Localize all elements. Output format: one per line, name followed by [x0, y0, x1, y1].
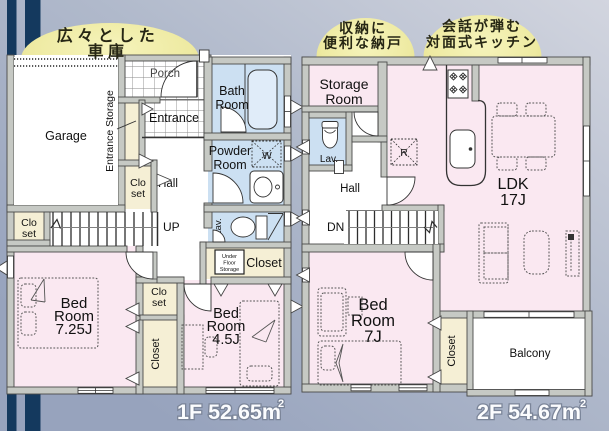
svg-text:Balcony: Balcony	[510, 348, 551, 360]
svg-text:set: set	[152, 297, 166, 309]
svg-text:Garage: Garage	[45, 129, 87, 143]
svg-text:Room: Room	[213, 158, 246, 172]
svg-text:Storage: Storage	[319, 76, 368, 92]
svg-text:車庫: 車庫	[87, 42, 128, 61]
svg-text:Under: Under	[222, 254, 237, 260]
svg-text:対面式キッチン: 対面式キッチン	[425, 34, 538, 50]
svg-text:Closet: Closet	[446, 335, 458, 366]
svg-text:17J: 17J	[500, 192, 526, 209]
svg-text:R: R	[400, 148, 407, 159]
svg-text:Floor: Floor	[223, 261, 236, 267]
svg-text:set: set	[131, 188, 145, 200]
svg-text:1F 52.65m: 1F 52.65m	[177, 400, 281, 424]
svg-text:2: 2	[580, 398, 586, 410]
svg-text:Closet: Closet	[246, 256, 282, 270]
svg-text:収納に: 収納に	[339, 20, 387, 36]
svg-text:4.5J: 4.5J	[212, 332, 239, 348]
svg-text:Powder: Powder	[209, 144, 251, 158]
svg-text:DN: DN	[327, 220, 344, 234]
svg-text:Closet: Closet	[150, 338, 162, 369]
svg-text:Room: Room	[215, 98, 248, 112]
svg-text:LDK: LDK	[497, 176, 528, 193]
svg-text:2F 54.67m: 2F 54.67m	[477, 400, 581, 424]
svg-text:7J: 7J	[364, 328, 381, 346]
svg-text:W: W	[262, 151, 272, 162]
svg-text:Entrance: Entrance	[149, 111, 199, 125]
svg-text:会話が弾む: 会話が弾む	[442, 18, 522, 34]
svg-text:Storage: Storage	[220, 267, 239, 273]
svg-text:便利な納戸: 便利な納戸	[323, 35, 403, 51]
svg-text:2: 2	[278, 398, 284, 410]
svg-text:Room: Room	[325, 91, 362, 107]
svg-text:Entrance Storage: Entrance Storage	[104, 90, 116, 172]
svg-text:UP: UP	[163, 220, 180, 234]
svg-text:広々とした: 広々とした	[57, 26, 160, 45]
svg-text:Lav.: Lav.	[320, 154, 338, 165]
svg-text:set: set	[22, 228, 36, 240]
svg-text:Hall: Hall	[340, 183, 360, 195]
svg-text:Bath: Bath	[219, 84, 245, 98]
svg-text:Porch: Porch	[150, 68, 180, 80]
svg-text:7.25J: 7.25J	[56, 321, 93, 338]
